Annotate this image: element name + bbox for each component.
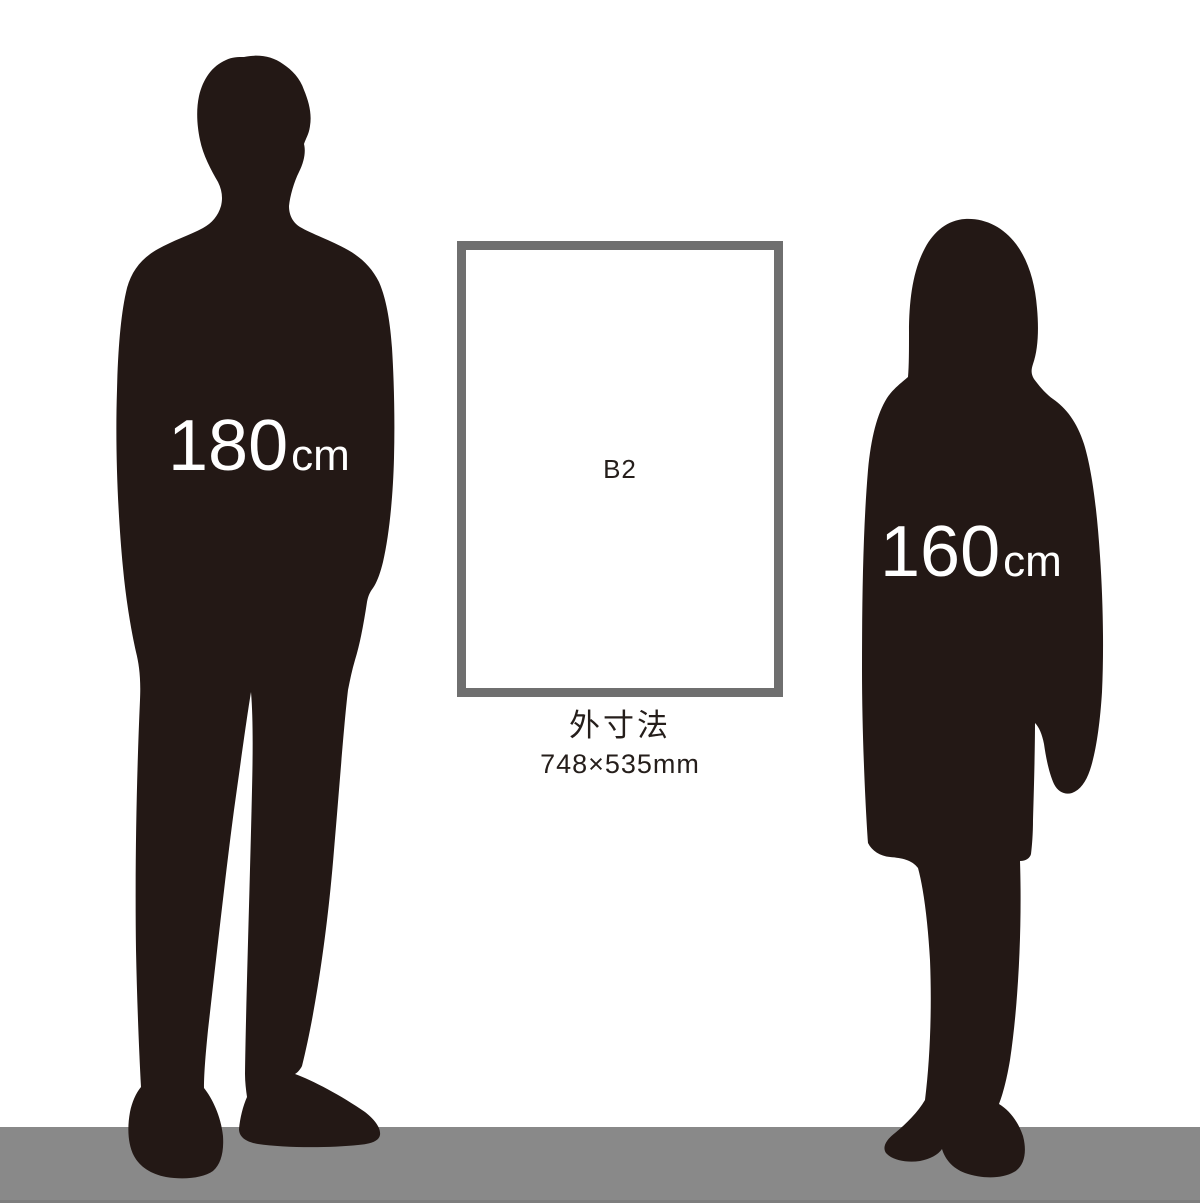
man-height-unit: cm [291, 434, 350, 478]
dimension-title: 外寸法 [430, 708, 810, 744]
woman-silhouette-path [862, 219, 1103, 1177]
dimension-value: 748×535mm [430, 748, 810, 780]
man-height-value: 180 [168, 410, 288, 482]
dimension-caption: 外寸法 748×535mm [430, 708, 810, 780]
woman-height-value: 160 [880, 516, 1000, 588]
man-height-label: 180 cm [168, 410, 350, 482]
woman-height-unit: cm [1003, 540, 1062, 584]
poster-frame: B2 [457, 241, 783, 697]
woman-height-label: 160 cm [880, 516, 1062, 588]
frame-size-label: B2 [603, 454, 637, 485]
size-comparison-illustration: B2 外寸法 748×535mm 180 cm 160 cm [0, 0, 1200, 1200]
